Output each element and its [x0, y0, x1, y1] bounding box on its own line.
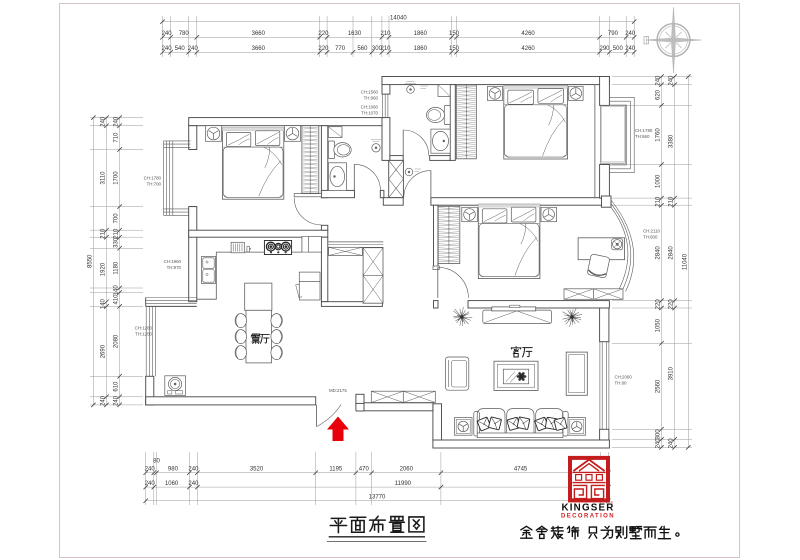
svg-text:240: 240 — [656, 75, 662, 86]
svg-text:DECORATION: DECORATION — [561, 514, 615, 520]
svg-text:®: ® — [611, 501, 614, 505]
svg-text:150: 150 — [449, 31, 460, 37]
svg-text:210: 210 — [669, 196, 675, 207]
svg-text:240: 240 — [625, 46, 636, 52]
svg-text:1050: 1050 — [656, 318, 662, 332]
svg-text:1180: 1180 — [114, 261, 120, 275]
svg-text:240: 240 — [101, 116, 107, 127]
svg-text:220: 220 — [669, 299, 675, 310]
svg-text:TH:960: TH:960 — [364, 95, 379, 100]
svg-text:11990: 11990 — [395, 481, 412, 487]
svg-text:560: 560 — [357, 46, 368, 52]
svg-text:240: 240 — [162, 31, 173, 37]
svg-text:240: 240 — [669, 438, 675, 449]
svg-text:3910: 3910 — [669, 366, 675, 380]
svg-text:300: 300 — [656, 429, 662, 440]
svg-text:220: 220 — [318, 46, 329, 52]
svg-text:KINGSER: KINGSER — [561, 502, 614, 513]
svg-text:240: 240 — [188, 467, 199, 473]
svg-text:240: 240 — [145, 467, 156, 473]
svg-text:13770: 13770 — [369, 495, 386, 501]
svg-text:1860: 1860 — [414, 31, 428, 37]
svg-text:2840: 2840 — [656, 246, 662, 260]
svg-text:240: 240 — [669, 75, 675, 86]
svg-text:240: 240 — [625, 31, 636, 37]
svg-text:3380: 3380 — [669, 134, 675, 148]
svg-text:4260: 4260 — [521, 31, 535, 37]
svg-text:3660: 3660 — [252, 31, 266, 37]
svg-text:CH:2060: CH:2060 — [615, 375, 633, 380]
svg-text:240: 240 — [114, 116, 120, 127]
svg-text:14040: 14040 — [390, 15, 407, 21]
svg-text:2840: 2840 — [669, 246, 675, 260]
svg-text:210: 210 — [380, 46, 391, 52]
svg-text:220: 220 — [318, 31, 329, 37]
svg-text:700: 700 — [114, 213, 120, 224]
svg-text:710: 710 — [114, 132, 120, 143]
svg-text:410: 410 — [114, 294, 120, 305]
svg-text:CH:2110: CH:2110 — [643, 229, 661, 234]
svg-text:4745: 4745 — [514, 467, 528, 473]
svg-text:MD:2175: MD:2175 — [329, 388, 347, 393]
svg-text:290: 290 — [599, 46, 610, 52]
svg-text:240: 240 — [145, 481, 156, 487]
svg-text:2060: 2060 — [400, 467, 414, 473]
svg-text:3660: 3660 — [252, 46, 266, 52]
svg-text:TH:60: TH:60 — [615, 381, 628, 386]
svg-text:CH:1560: CH:1560 — [361, 90, 379, 95]
svg-text:140: 140 — [114, 285, 120, 296]
svg-text:3520: 3520 — [250, 467, 264, 473]
svg-text:1700: 1700 — [114, 171, 120, 185]
svg-text:CH:1260: CH:1260 — [135, 326, 153, 331]
svg-text:770: 770 — [335, 46, 346, 52]
svg-text:1860: 1860 — [414, 46, 428, 52]
svg-text:790: 790 — [608, 31, 619, 37]
svg-text:CH:1780: CH:1780 — [635, 128, 653, 133]
svg-text:780: 780 — [179, 31, 190, 37]
svg-text:240: 240 — [162, 46, 173, 52]
svg-text:330: 330 — [114, 237, 120, 248]
svg-text:140: 140 — [101, 298, 107, 309]
svg-text:2690: 2690 — [101, 344, 107, 358]
svg-text:620: 620 — [656, 89, 662, 100]
svg-text:470: 470 — [359, 467, 370, 473]
svg-text:210: 210 — [114, 228, 120, 239]
svg-text:500: 500 — [613, 46, 624, 52]
svg-text:1760: 1760 — [656, 128, 662, 142]
svg-text:TH:600: TH:600 — [643, 235, 658, 240]
svg-text:240: 240 — [101, 395, 107, 406]
svg-text:CH:1780: CH:1780 — [144, 176, 162, 181]
svg-text:1000: 1000 — [656, 174, 662, 188]
svg-text:1920: 1920 — [101, 262, 107, 276]
svg-text:1630: 1630 — [348, 31, 362, 37]
svg-text:150: 150 — [449, 46, 460, 52]
svg-text:240: 240 — [114, 395, 120, 406]
svg-text:4260: 4260 — [521, 46, 535, 52]
svg-text:3110: 3110 — [101, 171, 107, 185]
svg-text:240: 240 — [188, 481, 199, 487]
svg-text:80: 80 — [153, 459, 160, 465]
svg-text:980: 980 — [168, 467, 179, 473]
svg-text:8550: 8550 — [87, 254, 93, 268]
svg-text:240: 240 — [656, 438, 662, 449]
svg-text:220: 220 — [656, 299, 662, 310]
svg-text:TH:700: TH:700 — [147, 182, 162, 187]
svg-text:CH:1060: CH:1060 — [361, 105, 379, 110]
svg-text:240: 240 — [188, 46, 199, 52]
svg-text:TH:660: TH:660 — [635, 134, 650, 139]
svg-text:2080: 2080 — [114, 334, 120, 348]
svg-text:1195: 1195 — [329, 467, 343, 473]
svg-text:540: 540 — [175, 46, 186, 52]
svg-text:610: 610 — [114, 381, 120, 392]
svg-text:TH:970: TH:970 — [167, 265, 182, 270]
svg-text:TH:1070: TH:1070 — [361, 110, 378, 115]
svg-text:CH:1960: CH:1960 — [164, 259, 182, 264]
svg-text:1060: 1060 — [165, 481, 179, 487]
svg-text:210: 210 — [380, 31, 391, 37]
svg-text:11040: 11040 — [682, 253, 688, 270]
svg-text:TH:1250: TH:1250 — [135, 331, 152, 336]
svg-text:2560: 2560 — [656, 379, 662, 393]
svg-text:210: 210 — [101, 228, 107, 239]
svg-text:210: 210 — [656, 196, 662, 207]
